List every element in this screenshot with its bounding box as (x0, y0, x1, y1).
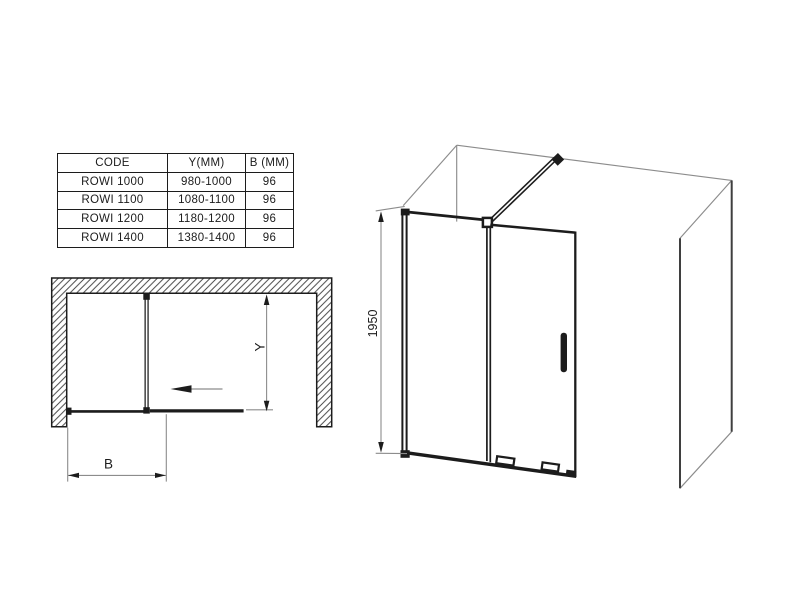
height-extension-top (376, 206, 405, 211)
cell-y: 1180-1200 (168, 210, 246, 229)
roller-carriage-left (496, 456, 514, 465)
slide-direction-arrow (171, 385, 223, 393)
wall-section-hatched (52, 278, 332, 427)
dimension-arrow-up (264, 294, 270, 305)
bar-bracket-bottom-plan (143, 407, 150, 413)
cell-b: 96 (246, 229, 294, 248)
cell-b: 96 (246, 210, 294, 229)
col-header-b-mm: B (MM) (246, 154, 294, 173)
roller-carriage-right (542, 462, 559, 471)
cell-code: ROWI 1100 (58, 191, 168, 210)
door-top-edge (490, 225, 575, 233)
cell-code: ROWI 1200 (58, 210, 168, 229)
right-wall-top-edge (680, 180, 732, 238)
cell-y: 1380-1400 (168, 229, 246, 248)
table-header-row: CODE Y(MM) B (MM) (58, 154, 294, 173)
technical-drawing-page: CODE Y(MM) B (MM) ROWI 1000 980-1000 96 … (0, 0, 800, 600)
cell-b: 96 (246, 191, 294, 210)
isometric-view: 1950 (366, 145, 732, 488)
cell-code: ROWI 1400 (58, 229, 168, 248)
fixed-panel-top-edge (409, 212, 485, 220)
y-dimension: Y (246, 294, 273, 411)
bar-bracket-top-plan (143, 294, 150, 300)
plan-view: Y B (52, 278, 332, 482)
cell-b: 96 (246, 172, 294, 191)
col-header-code: CODE (58, 154, 168, 173)
dimension-arrow-down (378, 442, 384, 453)
right-wall (680, 180, 732, 488)
left-wall-top-edge (403, 145, 457, 205)
height-dimension: 1950 (366, 206, 407, 453)
dimension-arrow-right (155, 473, 166, 478)
table-row: ROWI 1200 1180-1200 96 (58, 210, 294, 229)
right-wall-bottom-edge (680, 432, 732, 489)
height-dimension-label: 1950 (366, 310, 380, 338)
col-header-y-mm: Y(MM) (168, 154, 246, 173)
spec-table-header: CODE Y(MM) B (MM) (58, 154, 294, 173)
support-bar-inner (490, 159, 555, 221)
cell-y: 980-1000 (168, 172, 246, 191)
drawing-svg: Y B (0, 0, 800, 600)
b-dimension: B (68, 414, 167, 481)
table-row: ROWI 1400 1380-1400 96 (58, 229, 294, 248)
table-row: ROWI 1100 1080-1100 96 (58, 191, 294, 210)
dimension-arrow-left (68, 473, 79, 478)
spec-table: CODE Y(MM) B (MM) ROWI 1000 980-1000 96 … (57, 153, 294, 248)
table-row: ROWI 1000 980-1000 96 (58, 172, 294, 191)
y-dimension-label: Y (252, 342, 267, 351)
back-wall-top-edge (457, 145, 732, 180)
b-dimension-label: B (104, 457, 113, 472)
cell-code: ROWI 1000 (58, 172, 168, 191)
cell-y: 1080-1100 (168, 191, 246, 210)
door-handle (561, 333, 567, 372)
profile-top-cap (401, 209, 410, 216)
dimension-arrow-up (378, 211, 384, 222)
